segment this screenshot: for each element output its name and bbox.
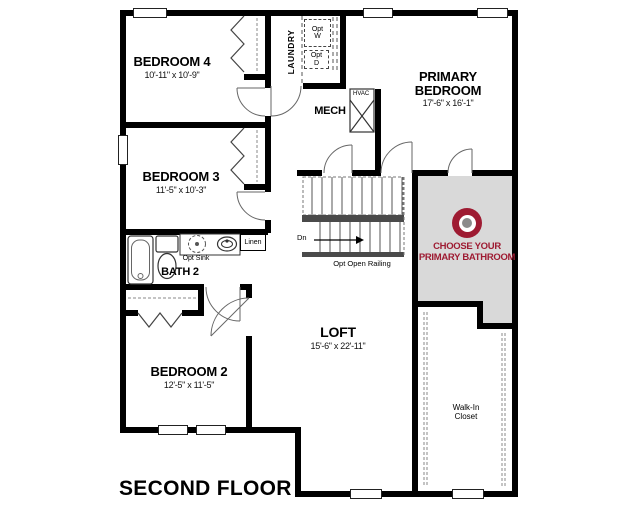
door-arc-primary-entry <box>381 142 412 173</box>
primary-bathroom-option-hotspot[interactable]: CHOOSE YOUR PRIMARY BATHROOM <box>418 176 512 301</box>
wall <box>246 284 252 298</box>
linen-closet: Linen <box>240 233 266 251</box>
wall <box>303 83 346 89</box>
window <box>118 135 128 165</box>
door-arc-bedroom4 <box>237 88 265 116</box>
wall <box>246 336 252 427</box>
wall <box>295 491 518 497</box>
room-label-walk-in-closet: Walk-In Closet <box>442 403 490 421</box>
room-name: BEDROOM 4 <box>134 55 211 69</box>
bifold-door-bedroom3-closet <box>231 128 244 184</box>
stair-direction-arrow <box>314 236 364 244</box>
opt-sink-label: Opt Sink <box>183 255 210 263</box>
door-arc-bedroom3 <box>237 192 265 220</box>
window <box>133 8 167 18</box>
wall <box>340 16 346 89</box>
target-bullseye-icon <box>452 208 482 238</box>
wall <box>244 74 271 80</box>
bifold-door-bedroom2-closet <box>138 313 182 327</box>
wall <box>352 170 381 176</box>
target-bullseye-inner-ring <box>459 215 476 232</box>
wall <box>265 220 271 233</box>
wall <box>198 284 204 316</box>
room-label-bedroom2: BEDROOM 2 12'-5" x 11'-5" <box>151 365 228 390</box>
room-name: PRIMARY BEDROOM <box>409 70 487 97</box>
window <box>350 489 382 499</box>
bathtub-icon <box>128 236 153 284</box>
room-label-mech: MECH <box>314 105 346 119</box>
door-arc-bath2 <box>206 287 240 321</box>
wall <box>244 184 271 190</box>
room-name: BEDROOM 2 <box>151 365 228 379</box>
room-label-laundry: LAUNDRY <box>286 30 296 75</box>
target-bullseye-center-dot <box>462 218 472 228</box>
room-label-bedroom3: BEDROOM 3 11'-5" x 10'-3" <box>143 170 220 195</box>
wall <box>182 310 198 316</box>
bifold-door-bedroom4-closet <box>231 16 244 72</box>
optional-sink-icon <box>189 236 206 253</box>
window <box>477 8 508 18</box>
door-arc-laundry <box>271 86 301 116</box>
optional-dryer-label: Opt D <box>310 52 323 67</box>
optional-dryer-box: Opt D <box>304 50 329 69</box>
room-label-bedroom4: BEDROOM 4 10'-11" x 10'-9" <box>134 55 211 80</box>
wall <box>477 323 512 329</box>
window <box>452 489 484 499</box>
room-dims: 15'-6" x 22'-11" <box>311 341 366 351</box>
choose-line1: CHOOSE YOUR <box>412 242 522 253</box>
room-dims: 11'-5" x 10'-3" <box>143 185 220 195</box>
window <box>158 425 188 435</box>
opt-open-railing-label: Opt Open Railing <box>333 260 391 268</box>
room-name: LOFT <box>311 326 366 340</box>
wall <box>412 301 483 307</box>
door-arc-bedroom2 <box>211 298 249 336</box>
choose-primary-bathroom-label: CHOOSE YOUR PRIMARY BATHROOM <box>412 242 522 263</box>
window <box>196 425 226 435</box>
floor-plan: BEDROOM 4 10'-11" x 10'-9" BEDROOM 3 11'… <box>0 0 640 512</box>
room-name: Walk-In Closet <box>442 403 490 421</box>
optional-washer-box: Opt W <box>304 19 331 47</box>
wall <box>126 122 271 128</box>
page-title: SECOND FLOOR <box>119 477 292 501</box>
room-dims: 12'-5" x 11'-5" <box>151 380 228 390</box>
wall <box>297 170 322 176</box>
stairs <box>302 177 404 257</box>
room-name: MECH <box>314 105 346 119</box>
window <box>363 8 393 18</box>
room-dims: 17'-6" x 16'-1" <box>409 98 487 108</box>
room-label-bath2: BATH 2 <box>161 266 199 280</box>
wall <box>375 89 381 170</box>
door-arc-mech <box>324 145 352 173</box>
optional-washer-label: Opt W <box>311 26 324 41</box>
choose-line2: PRIMARY BATHROOM <box>412 253 522 264</box>
wall <box>295 427 301 497</box>
door-arc-primary-bathroom <box>448 149 472 173</box>
wall <box>126 284 204 290</box>
wall <box>265 116 271 192</box>
room-label-primary-bedroom: PRIMARY BEDROOM 17'-6" x 16'-1" <box>409 70 487 108</box>
vanity-counter <box>180 234 240 255</box>
wall <box>120 10 518 16</box>
stairs-down-label: Dn <box>297 234 307 242</box>
linen-label: Linen <box>244 239 261 246</box>
sink-icon <box>218 237 237 251</box>
wall <box>120 10 126 433</box>
wall <box>126 310 138 316</box>
hvac-label: HVAC <box>353 91 369 99</box>
room-label-loft: LOFT 15'-6" x 22'-11" <box>311 326 366 351</box>
room-dims: 10'-11" x 10'-9" <box>134 70 211 80</box>
room-name: BEDROOM 3 <box>143 170 220 184</box>
room-name: BATH 2 <box>161 266 199 280</box>
